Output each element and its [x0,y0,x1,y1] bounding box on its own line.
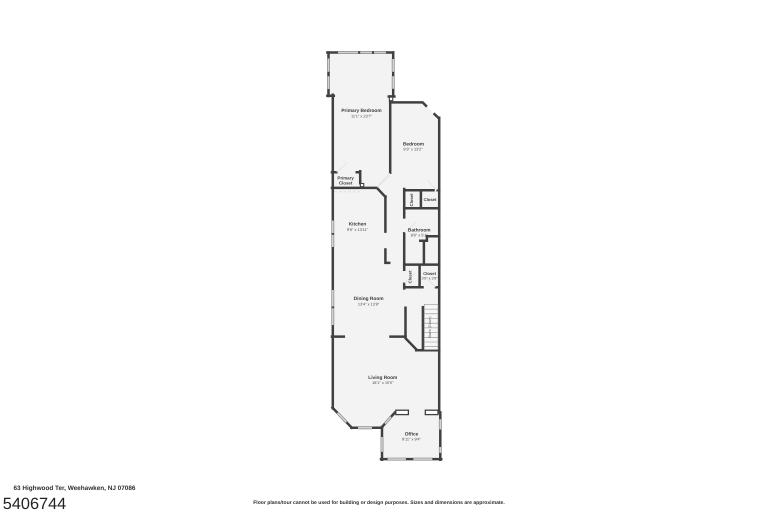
svg-text:5406744: 5406744 [3,495,66,512]
svg-text:Closet: Closet [408,270,413,283]
svg-text:Stairs (Down): Stairs (Down) [428,316,432,338]
svg-text:Closet: Closet [339,181,353,186]
svg-text:13'4" x 13'9": 13'4" x 13'9" [358,302,380,307]
svg-text:8'6" x 5'1": 8'6" x 5'1" [411,232,429,237]
svg-text:63 Highwood Ter, Weehawken, NJ: 63 Highwood Ter, Weehawken, NJ 07086 [14,485,136,492]
svg-text:18'1" x 15'5": 18'1" x 15'5" [372,380,394,385]
svg-text:11'1" x 23'7": 11'1" x 23'7" [351,113,373,118]
svg-text:Closet: Closet [409,193,414,206]
svg-text:9'6" x 13'11": 9'6" x 13'11" [347,227,369,232]
svg-text:Closet: Closet [424,197,437,202]
svg-text:Closet: Closet [423,271,436,276]
svg-text:Floor plans/tour cannot be use: Floor plans/tour cannot be used for buil… [253,500,505,506]
svg-text:3'5" x 3'9": 3'5" x 3'9" [422,277,439,281]
svg-text:9'11" x 9'4": 9'11" x 9'4" [402,437,422,442]
svg-text:9'3" x 13'2": 9'3" x 13'2" [403,147,423,152]
